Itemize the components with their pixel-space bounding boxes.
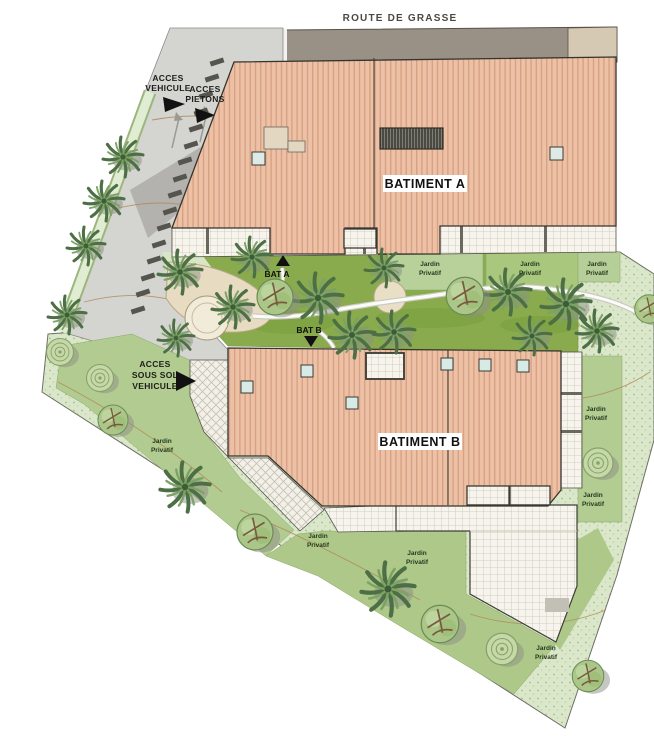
jardin-label: Jardin xyxy=(586,406,606,413)
road-label: ROUTE DE GRASSE xyxy=(343,13,458,24)
jardin-label: Privatif xyxy=(151,447,174,454)
building-a: BATIMENT A xyxy=(172,57,616,254)
road-edge-strip xyxy=(283,29,287,63)
glass-roof-panel xyxy=(366,353,404,379)
jardin-label: Jardin xyxy=(407,550,427,557)
roof-vent-grille xyxy=(380,128,443,149)
jardin-label: Jardin xyxy=(583,492,603,499)
site-plan-drawing: ROUTE DE GRASSE xyxy=(0,0,654,750)
jardin-label: Privatif xyxy=(582,501,605,508)
roof-structure xyxy=(264,127,288,149)
site-plan-page: ROUTE DE GRASSE xyxy=(0,0,654,750)
jardin-label: Jardin xyxy=(536,645,556,652)
jardin-label: Privatif xyxy=(585,415,608,422)
skylight xyxy=(346,397,358,409)
jardin-label: Privatif xyxy=(586,270,609,277)
jardin-label: Jardin xyxy=(587,261,607,268)
access-vehicle-line2: VEHICULE xyxy=(145,83,190,93)
building-a-balcony xyxy=(344,229,376,248)
jardin-label: Privatif xyxy=(307,542,330,549)
skylight xyxy=(301,365,313,377)
jardin-label: Jardin xyxy=(520,261,540,268)
jardin-label: Privatif xyxy=(419,270,442,277)
skylight xyxy=(550,147,563,160)
walk-circle-east xyxy=(374,281,406,313)
bat-b-label: BAT B xyxy=(296,325,321,335)
access-basement-line3: VEHICULE xyxy=(132,381,177,391)
jardin-label: Jardin xyxy=(152,438,172,445)
skylight xyxy=(517,360,529,372)
roof-structure xyxy=(288,141,305,152)
terrace-steps xyxy=(545,598,569,612)
building-a-roof xyxy=(172,57,616,254)
building-b-balcony xyxy=(467,486,509,505)
jardin-label: Privatif xyxy=(519,270,542,277)
skylight xyxy=(241,381,253,393)
skylight xyxy=(441,358,453,370)
access-basement-line2: SOUS SOL xyxy=(132,370,178,380)
jardin-label: Jardin xyxy=(420,261,440,268)
skylight xyxy=(479,359,491,371)
jardin-label: Jardin xyxy=(308,533,328,540)
access-pedestrian-line1: ACCES xyxy=(189,84,220,94)
building-b-balcony xyxy=(510,486,550,505)
access-vehicle-line1: ACCES xyxy=(152,73,183,83)
building-b-label: BATIMENT B xyxy=(379,435,460,449)
building-a-label: BATIMENT A xyxy=(385,177,466,191)
jardin-label: Privatif xyxy=(406,559,429,566)
access-pedestrian-line2: PIETONS xyxy=(185,94,224,104)
access-basement-line1: ACCES xyxy=(139,359,170,369)
skylight xyxy=(252,152,265,165)
jardin-label: Privatif xyxy=(535,654,558,661)
